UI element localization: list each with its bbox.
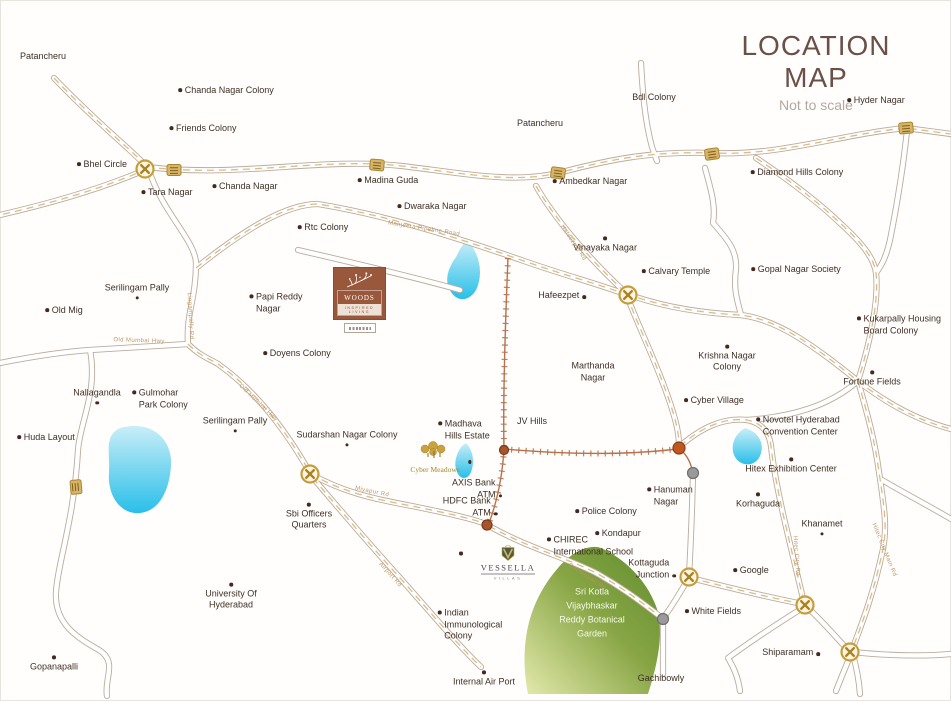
place-label: Papi ReddyNagar <box>249 291 302 314</box>
place-label: KottagudaJunction <box>628 557 676 580</box>
place-label-text: Doyens Colony <box>270 348 331 360</box>
place-label-text: Friends Colony <box>176 123 237 135</box>
place-label: Tara Nagar <box>141 187 192 199</box>
place-marker-dot <box>499 494 503 498</box>
place-marker-dot <box>751 267 755 271</box>
place-label-text: GulmoharPark Colony <box>139 387 188 410</box>
place-label: Hafeezpet <box>538 290 586 302</box>
place-label-text: Papi ReddyNagar <box>256 291 303 314</box>
place-label: Chanda Nagar Colony <box>178 85 274 97</box>
station-node-orange <box>673 442 685 454</box>
place-label: Patancheru <box>20 51 66 63</box>
place-marker-dot <box>647 487 651 491</box>
place-marker-dot <box>298 225 302 229</box>
place-marker-dot <box>438 421 442 425</box>
place-label: IndianImmunologicalColony <box>438 607 503 642</box>
vessella-logo-tagline: VILLAS <box>494 576 523 581</box>
place-marker-dot <box>229 583 233 587</box>
place-marker-dot <box>169 126 173 130</box>
place-label-text: Calvary Temple <box>648 266 710 278</box>
place-label-text: Tara Nagar <box>148 187 193 199</box>
place-label: Dwaraka Nagar <box>397 201 466 213</box>
place-label: Krishna NagarColony <box>698 345 756 374</box>
place-label: MarthandaNagar <box>571 360 614 383</box>
place-marker-dot <box>135 296 139 300</box>
place-marker-dot <box>95 401 99 405</box>
vessella-logo-name: VESSELLA <box>481 563 536 575</box>
place-label: Calvary Temple <box>642 266 710 278</box>
place-label: Huda Layout <box>17 432 75 444</box>
place-marker-dot <box>358 178 362 182</box>
place-label-text: Internal Air Port <box>453 676 515 688</box>
place-label: Sbi OfficersQuarters <box>286 503 332 532</box>
place-label: University OfHyderabad <box>205 583 257 612</box>
place-label: Madina Guda <box>358 175 419 187</box>
place-marker-dot <box>684 398 688 402</box>
place-marker-dot <box>553 179 557 183</box>
branch-art-icon <box>340 271 380 290</box>
place-marker-dot <box>345 443 349 447</box>
place-label: Khanamet <box>801 518 842 535</box>
place-marker-dot <box>397 204 401 208</box>
place-marker-dot <box>820 532 824 536</box>
station-node-brown <box>482 520 492 530</box>
place-marker-dot <box>17 435 21 439</box>
place-marker-dot <box>582 295 586 299</box>
place-label-text: MarthandaNagar <box>571 360 614 383</box>
place-label-text: Krishna NagarColony <box>698 350 756 373</box>
place-label: Gopanapalli <box>30 655 78 672</box>
page-title: LOCATION MAP <box>706 30 926 94</box>
place-label-text: Serilingam Pally <box>105 282 170 294</box>
place-marker-dot <box>725 345 729 349</box>
place-label: Hitex Exhibition Center <box>745 457 837 474</box>
place-label-text: Chanda Nagar <box>219 181 278 193</box>
place-label-text: White Fields <box>691 606 741 618</box>
place-marker-dot <box>263 351 267 355</box>
place-marker-dot <box>789 457 793 461</box>
place-marker-dot <box>756 417 760 421</box>
place-label-text: Chanda Nagar Colony <box>185 85 274 97</box>
place-marker-dot <box>756 492 760 496</box>
place-label: JV Hills <box>517 416 547 428</box>
place-label: Old Mig <box>45 305 83 317</box>
place-marker-dot <box>52 655 56 659</box>
place-label-text: HDFC BankATM <box>443 495 491 518</box>
place-label-text: Korhaguda <box>736 498 780 510</box>
place-label-text: Fortune Fields <box>843 376 901 388</box>
cyber-meadows-label: Cyber Meadows <box>410 465 459 474</box>
place-marker-dot <box>233 429 237 433</box>
place-label: Police Colony <box>575 506 637 518</box>
vessella-villas-logo: VESSELLA VILLAS <box>473 546 543 581</box>
cyber-meadows-dot <box>468 460 472 464</box>
place-label-text: Police Colony <box>582 506 637 518</box>
place-marker-dot <box>685 609 689 613</box>
place-label: Cyber Village <box>684 395 744 407</box>
botanical-garden-label: Sri Kotla Vijaybhaskar Reddy Botanical G… <box>559 585 625 640</box>
place-marker-dot <box>77 162 81 166</box>
place-label: MadhavaHills Estate <box>438 418 490 441</box>
place-label-text: CHIRECInternational School <box>553 534 633 557</box>
woods-logo-name: WOODS <box>344 294 375 302</box>
place-marker-dot <box>494 512 498 516</box>
place-marker-dot <box>212 184 216 188</box>
place-label: Rtc Colony <box>298 222 349 234</box>
place-label-text: IndianImmunologicalColony <box>444 607 502 642</box>
place-label: Hyder Nagar <box>847 95 905 107</box>
place-label-text: University OfHyderabad <box>205 588 257 611</box>
place-label-text: Rtc Colony <box>304 222 348 234</box>
place-label: Bhel Circle <box>77 159 127 171</box>
place-marker-dot <box>482 670 486 674</box>
place-marker-dot <box>45 308 49 312</box>
place-label: Patancheru <box>517 118 563 130</box>
place-label-text: Hafeezpet <box>538 290 579 302</box>
place-label: Bdl Colony <box>632 92 676 104</box>
woods-logo-tagline: INSPIRED LIVING <box>338 304 381 315</box>
place-label: Novotel HyderabadConvention Center <box>756 414 840 437</box>
place-label: Gachibowly <box>638 673 685 685</box>
place-label-text: KottagudaJunction <box>628 557 669 580</box>
place-marker-dot <box>438 610 442 614</box>
place-label-text: Hitex Exhibition Center <box>745 463 837 475</box>
woods-legend-box <box>344 323 376 333</box>
place-marker-dot <box>575 509 579 513</box>
station-node-brown <box>500 446 509 455</box>
place-label: Nallagandla <box>73 387 121 404</box>
place-label: HanumanNagar <box>647 484 693 507</box>
place-label-text: Sudarshan Nagar Colony <box>296 429 397 441</box>
place-marker-dot <box>857 316 861 320</box>
place-label: Doyens Colony <box>263 348 331 360</box>
place-label: Serilingam Pally <box>203 415 268 432</box>
place-label-text: JV Hills <box>517 416 547 428</box>
vessella-location-dot <box>459 552 463 556</box>
place-label: Gopal Nagar Society <box>751 264 841 276</box>
place-label-text: Gachibowly <box>638 673 685 685</box>
place-label-text: Cyber Village <box>691 395 744 407</box>
woods-logo-box: WOODS INSPIRED LIVING <box>333 267 386 320</box>
place-label-text: Ambedkar Nagar <box>559 176 627 188</box>
place-label: Friends Colony <box>169 123 236 135</box>
place-label-text: Shiparamam <box>762 647 813 659</box>
place-marker-dot <box>249 294 253 298</box>
place-label: HDFC BankATM <box>443 495 498 518</box>
place-label-text: Bdl Colony <box>632 92 676 104</box>
place-label-text: Dwaraka Nagar <box>404 201 467 213</box>
place-marker-dot <box>307 503 311 507</box>
cyber-meadows-marker: Cyber Meadows <box>410 450 459 474</box>
place-label: Chanda Nagar <box>212 181 277 193</box>
place-label: Shiparamam <box>762 647 820 659</box>
place-label-text: Khanamet <box>801 518 842 530</box>
place-label: Sudarshan Nagar Colony <box>296 429 397 446</box>
place-label: Diamond Hills Colony <box>751 167 844 179</box>
vessella-emblem-icon <box>500 546 516 562</box>
place-label: Serilingam Pally <box>105 282 170 299</box>
place-marker-dot <box>751 170 755 174</box>
place-label-text: Hyder Nagar <box>854 95 905 107</box>
place-label: Ambedkar Nagar <box>553 176 628 188</box>
place-marker-dot <box>642 269 646 273</box>
place-marker-dot <box>547 537 551 541</box>
place-label-text: Huda Layout <box>24 432 75 444</box>
place-label: White Fields <box>685 606 741 618</box>
place-label: GulmoharPark Colony <box>132 387 188 410</box>
place-label-text: Kukarpally HousingBoard Colony <box>863 313 941 336</box>
place-label-text: Old Mig <box>52 305 83 317</box>
junction-node-gray <box>658 614 669 625</box>
place-label: CHIRECInternational School <box>547 534 633 557</box>
place-label-text: Novotel HyderabadConvention Center <box>763 414 840 437</box>
place-label-text: Serilingam Pally <box>203 415 268 427</box>
place-label-text: Patancheru <box>517 118 563 130</box>
place-marker-dot <box>141 190 145 194</box>
place-label-text: Nallagandla <box>73 387 121 399</box>
place-marker-dot <box>733 568 737 572</box>
place-label-text: Madina Guda <box>364 175 418 187</box>
place-marker-dot <box>672 574 676 578</box>
place-marker-dot <box>603 236 607 240</box>
place-label-text: HanumanNagar <box>654 484 693 507</box>
place-label-text: Bhel Circle <box>83 159 127 171</box>
place-marker-dot <box>870 370 874 374</box>
place-label-text: Gopal Nagar Society <box>758 264 841 276</box>
place-label-text: MadhavaHills Estate <box>445 418 490 441</box>
lake-nallagandla <box>109 426 171 513</box>
place-label-text: Sbi OfficersQuarters <box>286 508 332 531</box>
junction-node-gray <box>688 468 699 479</box>
place-label-text: Gopanapalli <box>30 661 78 673</box>
place-marker-dot <box>816 652 820 656</box>
place-label: Kukarpally HousingBoard Colony <box>857 313 941 336</box>
place-label: Google <box>733 565 769 577</box>
place-marker-dot <box>847 98 851 102</box>
place-label-text: Google <box>740 565 769 577</box>
place-label: Fortune Fields <box>843 370 901 387</box>
place-marker-dot <box>132 390 136 394</box>
location-map: LOCATION MAP Not to scale PatancheruChan… <box>0 0 951 701</box>
place-label-text: Patancheru <box>20 51 66 63</box>
place-label: Internal Air Port <box>453 670 515 687</box>
place-label: Korhaguda <box>736 492 780 509</box>
place-label-text: Diamond Hills Colony <box>757 167 843 179</box>
place-marker-dot <box>178 88 182 92</box>
woods-project-logo: WOODS INSPIRED LIVING <box>333 267 386 333</box>
